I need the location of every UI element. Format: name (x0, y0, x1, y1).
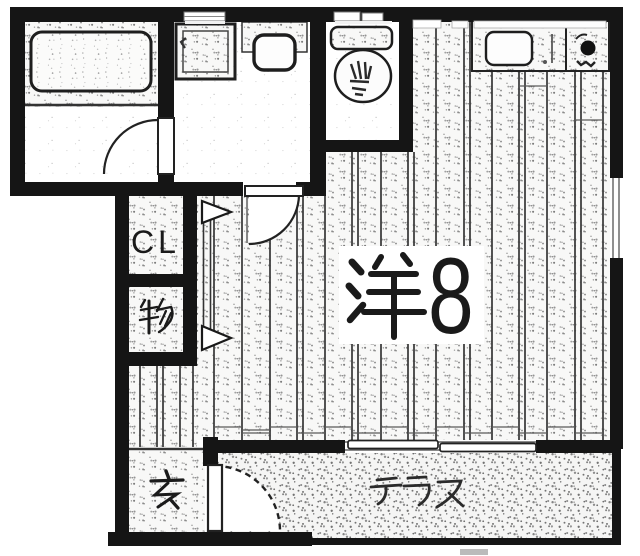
svg-text:CL: CL (131, 224, 180, 260)
svg-text:8: 8 (428, 236, 474, 356)
